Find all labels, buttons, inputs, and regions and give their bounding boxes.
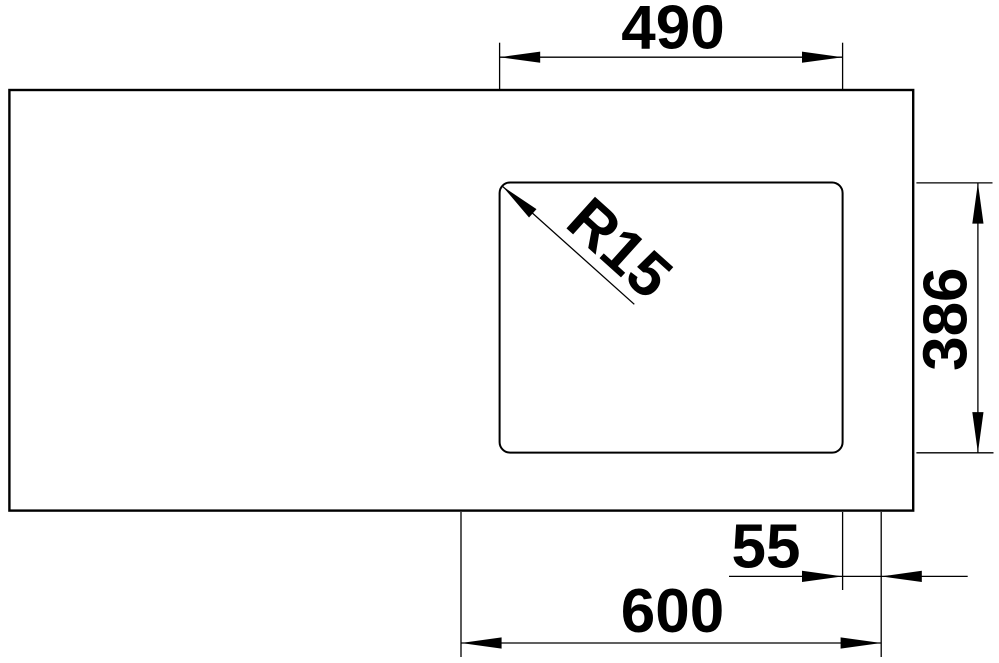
svg-text:386: 386 [912,267,981,370]
svg-text:55: 55 [732,513,801,582]
svg-text:600: 600 [621,577,724,646]
svg-text:490: 490 [621,0,724,63]
